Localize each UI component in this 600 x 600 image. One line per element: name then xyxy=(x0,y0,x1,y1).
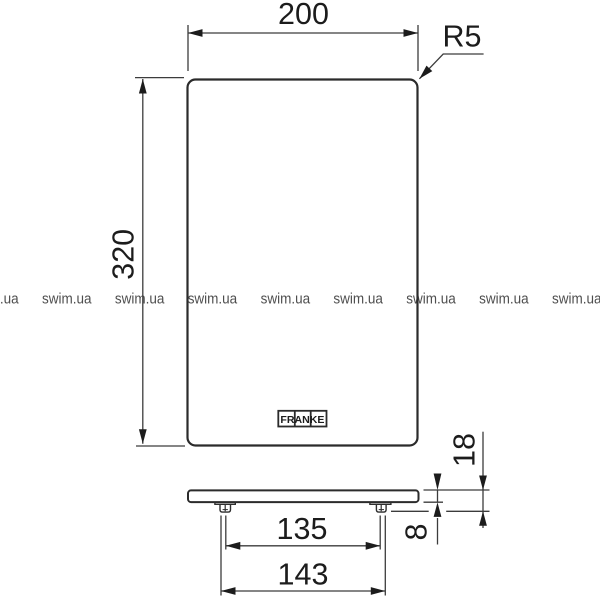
svg-text:swim.ua: swim.ua xyxy=(552,291,600,308)
svg-text:swim.ua: swim.ua xyxy=(479,291,529,308)
svg-text:swim.ua: swim.ua xyxy=(188,291,238,308)
svg-text:swim.ua: swim.ua xyxy=(115,291,165,308)
svg-text:8: 8 xyxy=(400,524,434,541)
svg-text:135: 135 xyxy=(277,512,328,546)
svg-text:143: 143 xyxy=(278,558,329,592)
svg-text:swim.ua: swim.ua xyxy=(333,291,383,308)
svg-text:swim.ua: swim.ua xyxy=(42,291,92,308)
svg-text:swim.ua: swim.ua xyxy=(261,291,311,308)
svg-text:swim.ua: swim.ua xyxy=(406,291,456,308)
svg-text:swim.ua: swim.ua xyxy=(0,291,19,308)
svg-text:320: 320 xyxy=(106,229,140,280)
svg-text:R5: R5 xyxy=(443,20,482,54)
svg-text:FRANKE: FRANKE xyxy=(280,414,324,426)
svg-text:18: 18 xyxy=(448,433,482,467)
svg-text:200: 200 xyxy=(278,0,329,31)
